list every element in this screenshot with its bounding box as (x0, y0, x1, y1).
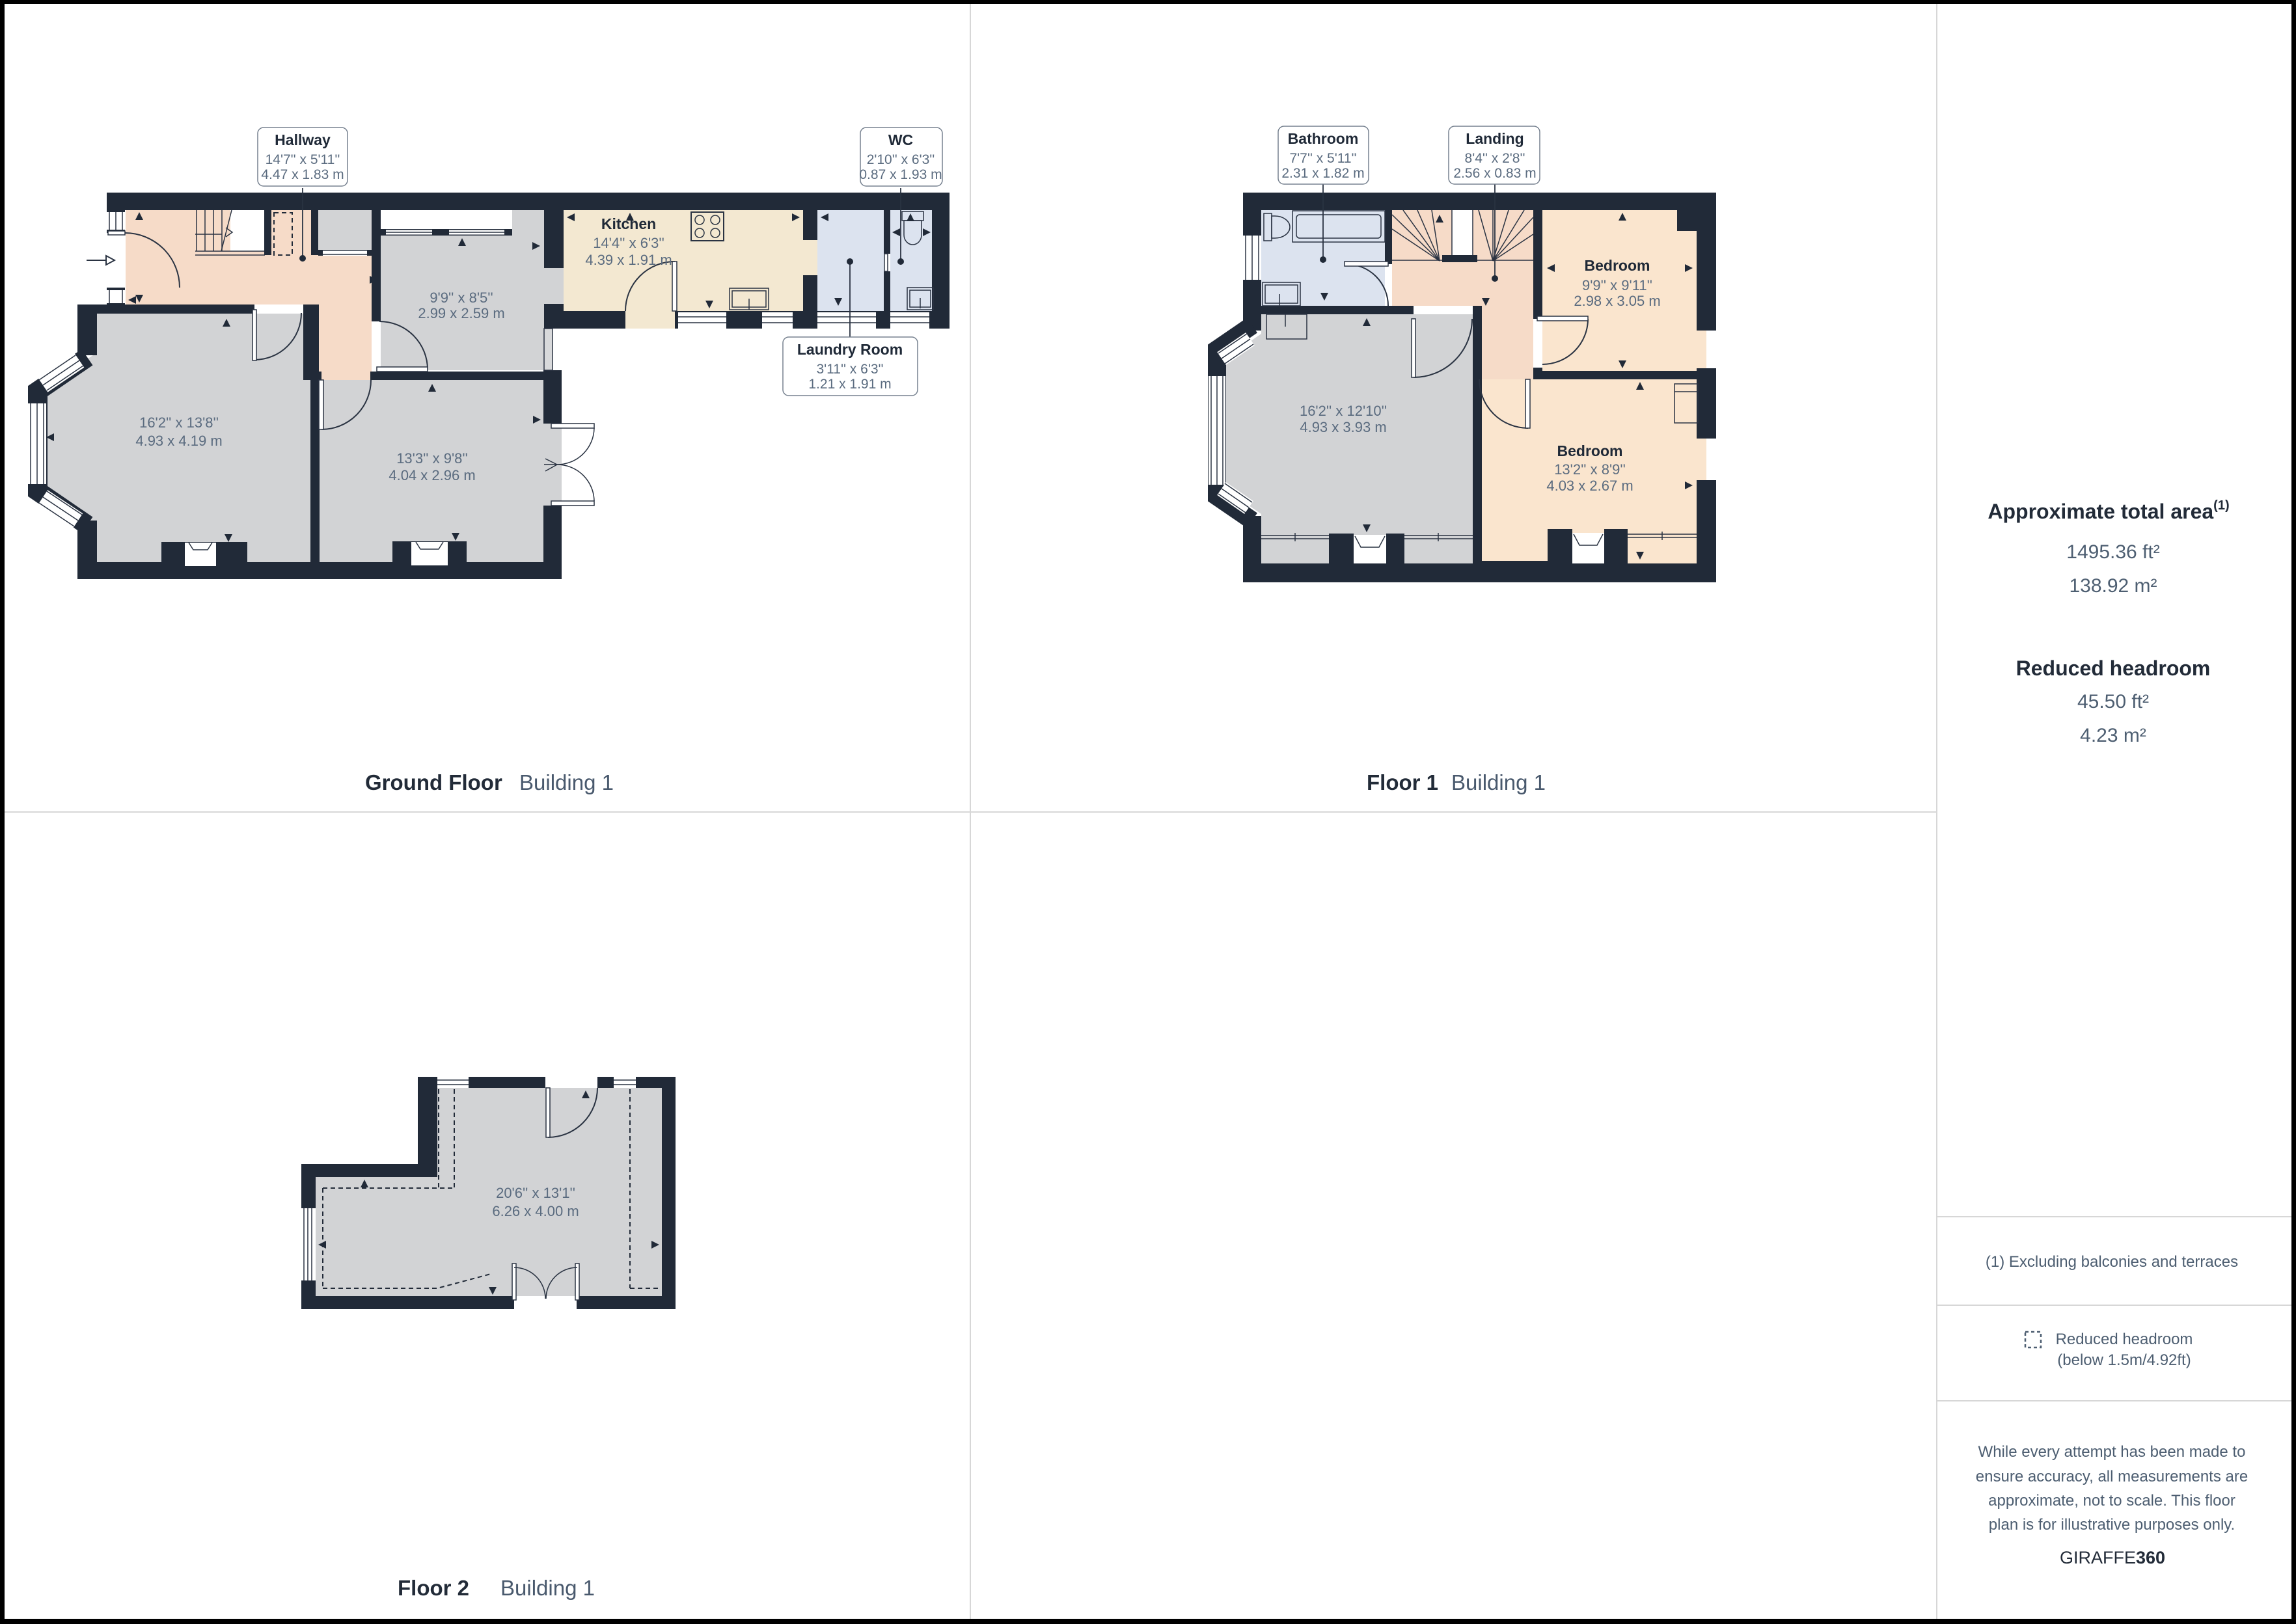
svg-text:1.21 x 1.91 m: 1.21 x 1.91 m (808, 377, 891, 392)
svg-text:Reduced headroom: Reduced headroom (2056, 1331, 2193, 1348)
svg-text:4.04 x 2.96 m: 4.04 x 2.96 m (389, 467, 475, 483)
svg-text:Approximate total area(1): Approximate total area(1) (1988, 498, 2229, 523)
svg-text:Bedroom: Bedroom (1557, 442, 1623, 459)
svg-text:14'4'' x 6'3'': 14'4'' x 6'3'' (593, 235, 664, 251)
svg-text:9'9'' x 8'5'': 9'9'' x 8'5'' (430, 290, 493, 306)
svg-text:plan is for illustrative purpo: plan is for illustrative purposes only. (1989, 1516, 2235, 1534)
svg-text:9'9'' x 9'11'': 9'9'' x 9'11'' (1582, 277, 1652, 293)
svg-text:16'2'' x 12'10'': 16'2'' x 12'10'' (1300, 403, 1387, 419)
svg-text:4.93 x 3.93 m: 4.93 x 3.93 m (1300, 419, 1386, 435)
svg-text:20'6'' x 13'1'': 20'6'' x 13'1'' (496, 1185, 575, 1201)
svg-text:approximate, not to scale. Thi: approximate, not to scale. This floor (1988, 1492, 2235, 1509)
svg-text:6.26 x 4.00 m: 6.26 x 4.00 m (492, 1203, 579, 1219)
svg-text:Laundry Room: Laundry Room (797, 341, 903, 358)
svg-text:(below 1.5m/4.92ft): (below 1.5m/4.92ft) (2057, 1351, 2191, 1369)
svg-text:4.39 x 1.91 m: 4.39 x 1.91 m (585, 252, 672, 268)
svg-text:138.92 m²: 138.92 m² (2069, 575, 2157, 597)
svg-text:2.99 x 2.59 m: 2.99 x 2.59 m (418, 305, 504, 321)
svg-text:Floor 1: Floor 1 (1367, 770, 1438, 794)
svg-text:2.56 x 0.83 m: 2.56 x 0.83 m (1453, 166, 1536, 181)
svg-text:4.23 m²: 4.23 m² (2080, 725, 2146, 746)
svg-text:Bathroom: Bathroom (1288, 130, 1359, 147)
svg-text:Reduced headroom: Reduced headroom (2016, 656, 2211, 680)
svg-text:14'7'' x 5'11'': 14'7'' x 5'11'' (266, 152, 340, 167)
svg-text:13'3'' x 9'8'': 13'3'' x 9'8'' (396, 450, 468, 467)
svg-text:13'2'' x 8'9'': 13'2'' x 8'9'' (1554, 461, 1626, 478)
svg-text:Building 1: Building 1 (500, 1576, 595, 1600)
svg-text:2'10'' x 6'3'': 2'10'' x 6'3'' (867, 152, 935, 167)
svg-text:8'4'' x 2'8'': 8'4'' x 2'8'' (1465, 151, 1525, 166)
svg-text:4.03 x 2.67 m: 4.03 x 2.67 m (1546, 478, 1633, 494)
svg-text:4.93 x 4.19 m: 4.93 x 4.19 m (135, 433, 222, 449)
svg-text:GIRAFFE360: GIRAFFE360 (2060, 1548, 2165, 1567)
svg-text:While every attempt has been m: While every attempt has been made to (1978, 1443, 2246, 1461)
svg-text:WC: WC (888, 131, 913, 148)
svg-text:16'2'' x 13'8'': 16'2'' x 13'8'' (139, 414, 219, 431)
svg-text:Floor 2: Floor 2 (398, 1576, 469, 1600)
svg-text:3'11'' x 6'3'': 3'11'' x 6'3'' (816, 362, 883, 377)
svg-text:4.47 x 1.83 m: 4.47 x 1.83 m (261, 167, 344, 182)
svg-text:Bedroom: Bedroom (1585, 257, 1650, 274)
svg-text:45.50 ft²: 45.50 ft² (2077, 691, 2149, 712)
svg-text:ensure accuracy, all measureme: ensure accuracy, all measurements are (1976, 1468, 2248, 1485)
svg-text:Building 1: Building 1 (519, 770, 614, 794)
svg-text:Kitchen: Kitchen (601, 215, 656, 232)
svg-text:0.87 x 1.93 m: 0.87 x 1.93 m (859, 167, 942, 182)
svg-text:7'7'' x 5'11'': 7'7'' x 5'11'' (1289, 151, 1356, 166)
svg-text:(1) Excluding balconies and te: (1) Excluding balconies and terraces (1986, 1253, 2238, 1271)
svg-text:1495.36 ft²: 1495.36 ft² (2066, 541, 2159, 563)
svg-text:Ground Floor: Ground Floor (365, 770, 502, 794)
svg-text:Hallway: Hallway (275, 131, 331, 148)
svg-text:2.98 x 3.05 m: 2.98 x 3.05 m (1574, 293, 1660, 309)
svg-text:Building 1: Building 1 (1451, 770, 1546, 794)
svg-text:Landing: Landing (1466, 130, 1524, 147)
svg-text:2.31 x 1.82 m: 2.31 x 1.82 m (1281, 166, 1364, 181)
